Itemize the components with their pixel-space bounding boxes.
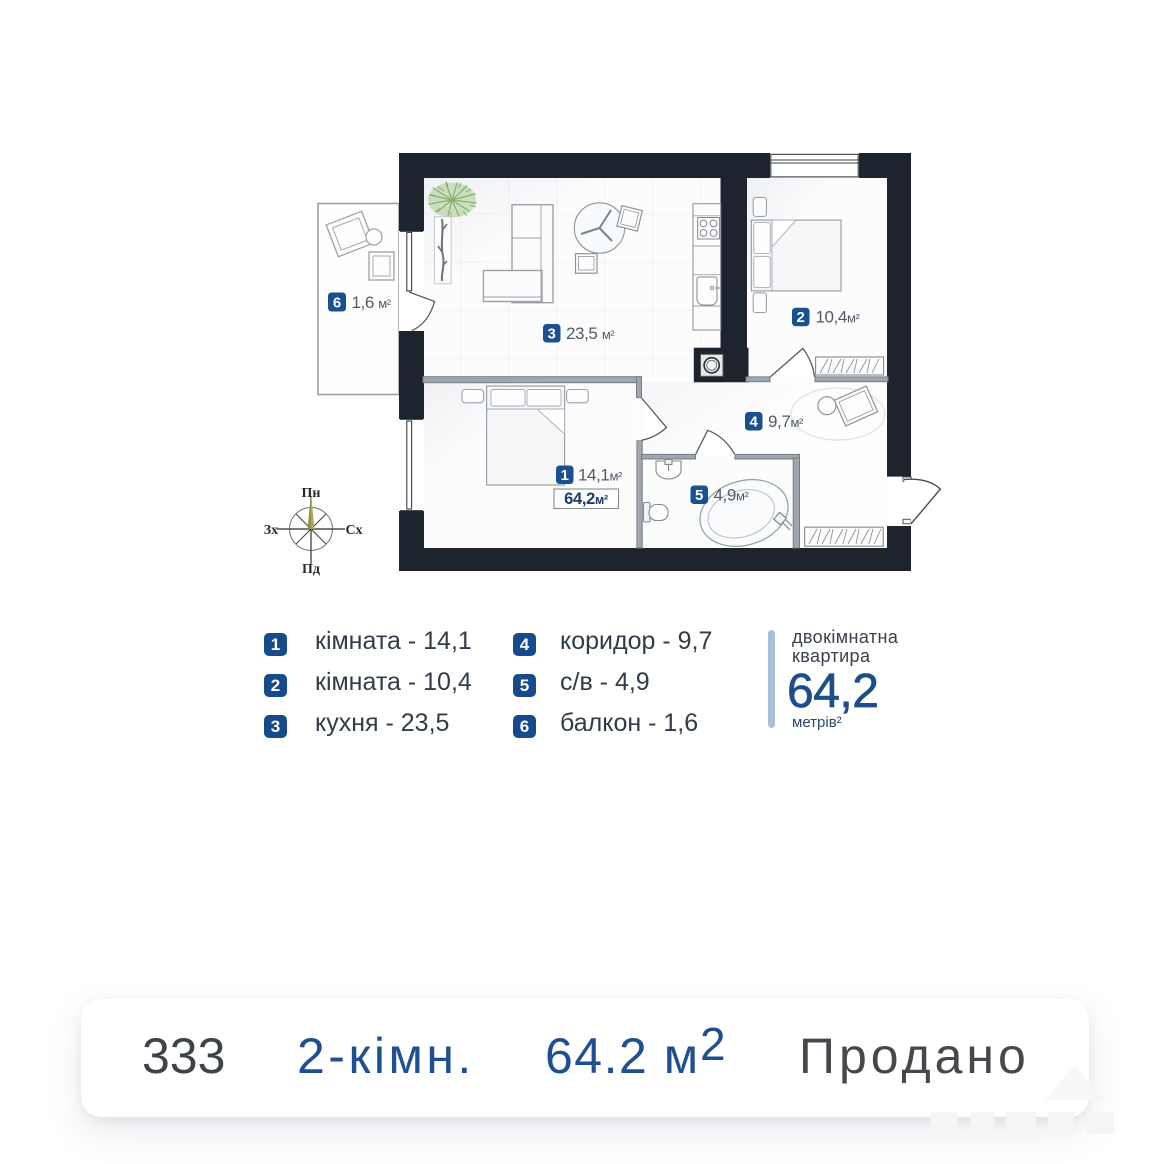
svg-text:Пд: Пд bbox=[302, 562, 320, 577]
svg-text:23,5 м²: 23,5 м² bbox=[566, 324, 615, 343]
svg-text:5: 5 bbox=[695, 487, 703, 504]
svg-text:2: 2 bbox=[797, 309, 805, 326]
svg-text:1,6 м²: 1,6 м² bbox=[352, 293, 392, 312]
svg-text:10,4м²: 10,4м² bbox=[816, 308, 861, 327]
svg-text:3: 3 bbox=[548, 326, 556, 343]
svg-text:Зх: Зх bbox=[264, 523, 278, 538]
svg-text:1: 1 bbox=[561, 467, 569, 484]
svg-text:Пн: Пн bbox=[302, 486, 321, 501]
svg-text:14,1м²: 14,1м² bbox=[578, 466, 623, 485]
svg-text:4,9м²: 4,9м² bbox=[714, 486, 750, 505]
svg-text:6: 6 bbox=[333, 295, 341, 312]
svg-text:Сх: Сх bbox=[345, 523, 362, 538]
svg-text:64,2м²: 64,2м² bbox=[564, 490, 608, 508]
svg-text:9,7м²: 9,7м² bbox=[768, 412, 804, 431]
svg-text:4: 4 bbox=[750, 414, 759, 431]
